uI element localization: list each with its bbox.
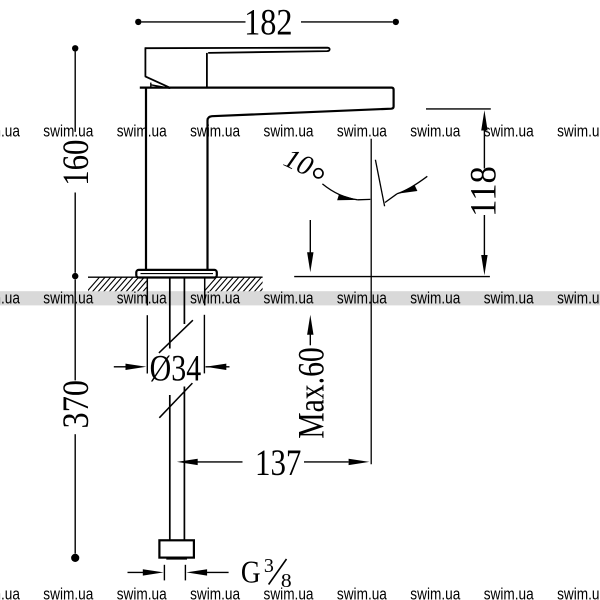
svg-text:118: 118 [463,166,504,217]
svg-text:Max.60: Max.60 [291,347,332,439]
svg-text:swim.ua: swim.ua [484,123,535,141]
svg-text:swim.ua: swim.ua [0,586,21,600]
svg-text:swim.ua: swim.ua [410,586,461,600]
svg-text:swim.ua: swim.ua [337,586,388,600]
svg-text:swim.ua: swim.ua [0,123,21,141]
svg-text:160: 160 [55,140,96,186]
svg-text:swim.ua: swim.ua [557,289,600,307]
svg-text:swim.ua: swim.ua [264,586,315,600]
svg-text:swim.ua: swim.ua [337,289,388,307]
svg-text:G: G [241,554,261,589]
svg-text:swim.ua: swim.ua [410,123,461,141]
svg-text:swim.ua: swim.ua [484,586,535,600]
svg-text:swim.ua: swim.ua [0,289,21,307]
svg-text:swim.ua: swim.ua [337,123,388,141]
svg-text:swim.ua: swim.ua [190,123,241,141]
svg-text:swim.ua: swim.ua [117,586,168,600]
svg-text:swim.ua: swim.ua [43,123,94,141]
svg-text:swim.ua: swim.ua [557,586,600,600]
svg-text:3: 3 [264,555,274,577]
svg-text:137: 137 [255,442,301,483]
svg-text:swim.ua: swim.ua [43,289,94,307]
svg-text:swim.ua: swim.ua [190,289,241,307]
svg-text:swim.ua: swim.ua [117,123,168,141]
svg-text:Ø34: Ø34 [150,348,202,389]
svg-text:swim.ua: swim.ua [557,123,600,141]
svg-text:swim.ua: swim.ua [264,289,315,307]
svg-text:swim.ua: swim.ua [264,123,315,141]
svg-text:swim.ua: swim.ua [484,289,535,307]
svg-text:182: 182 [244,2,292,43]
svg-text:swim.ua: swim.ua [117,289,168,307]
svg-text:swim.ua: swim.ua [190,586,241,600]
svg-text:swim.ua: swim.ua [43,586,94,600]
svg-text:370: 370 [55,380,96,429]
svg-text:swim.ua: swim.ua [410,289,461,307]
